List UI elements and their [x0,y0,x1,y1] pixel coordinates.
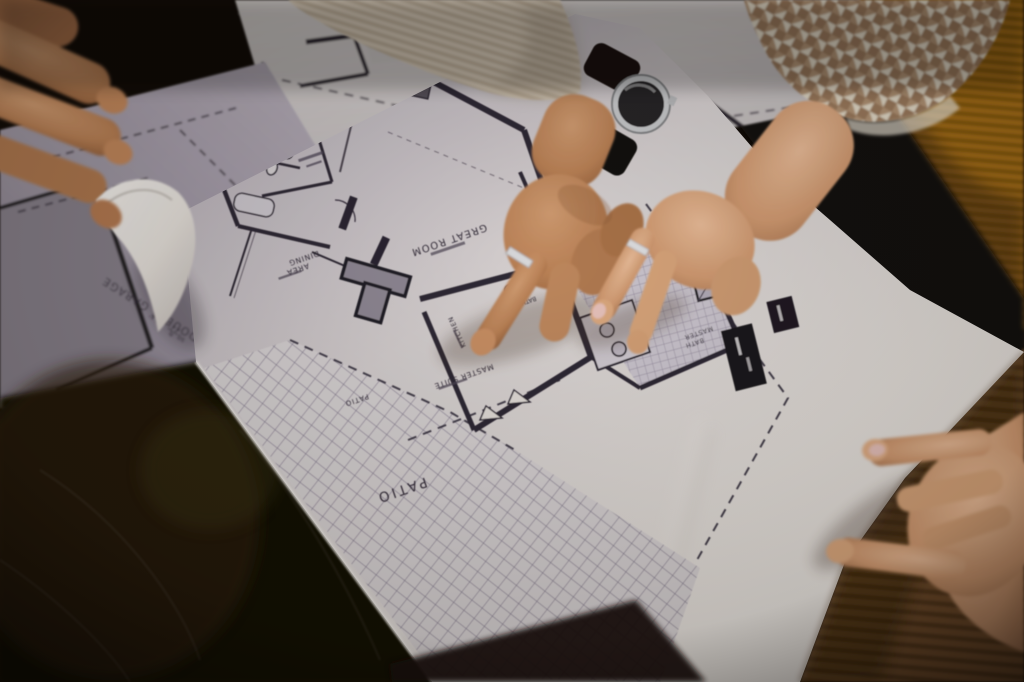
photo-couple-reviewing-floor-plans: DOUBLE GARAGE 22' x 24' sq. ft. DOUBLE G… [0,0,1024,682]
photo-canvas: DOUBLE GARAGE 22' x 24' sq. ft. DOUBLE G… [0,0,1024,682]
top-darkening [0,0,1024,90]
vignette [0,0,1024,682]
